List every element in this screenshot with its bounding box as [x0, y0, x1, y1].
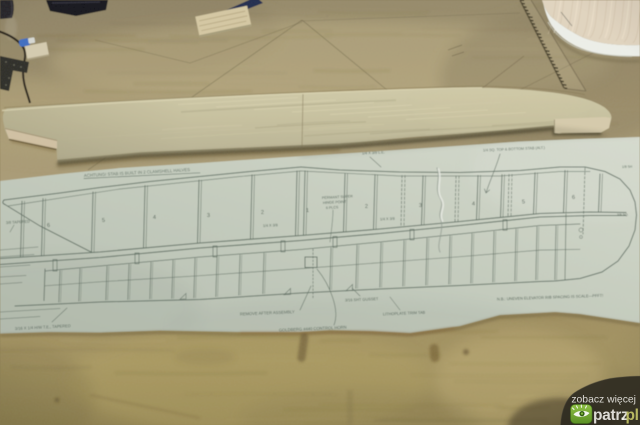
svg-text:.: . [621, 407, 625, 424]
svg-text:pl: pl [626, 407, 639, 424]
svg-text:zobacz więcej: zobacz więcej [571, 395, 636, 406]
